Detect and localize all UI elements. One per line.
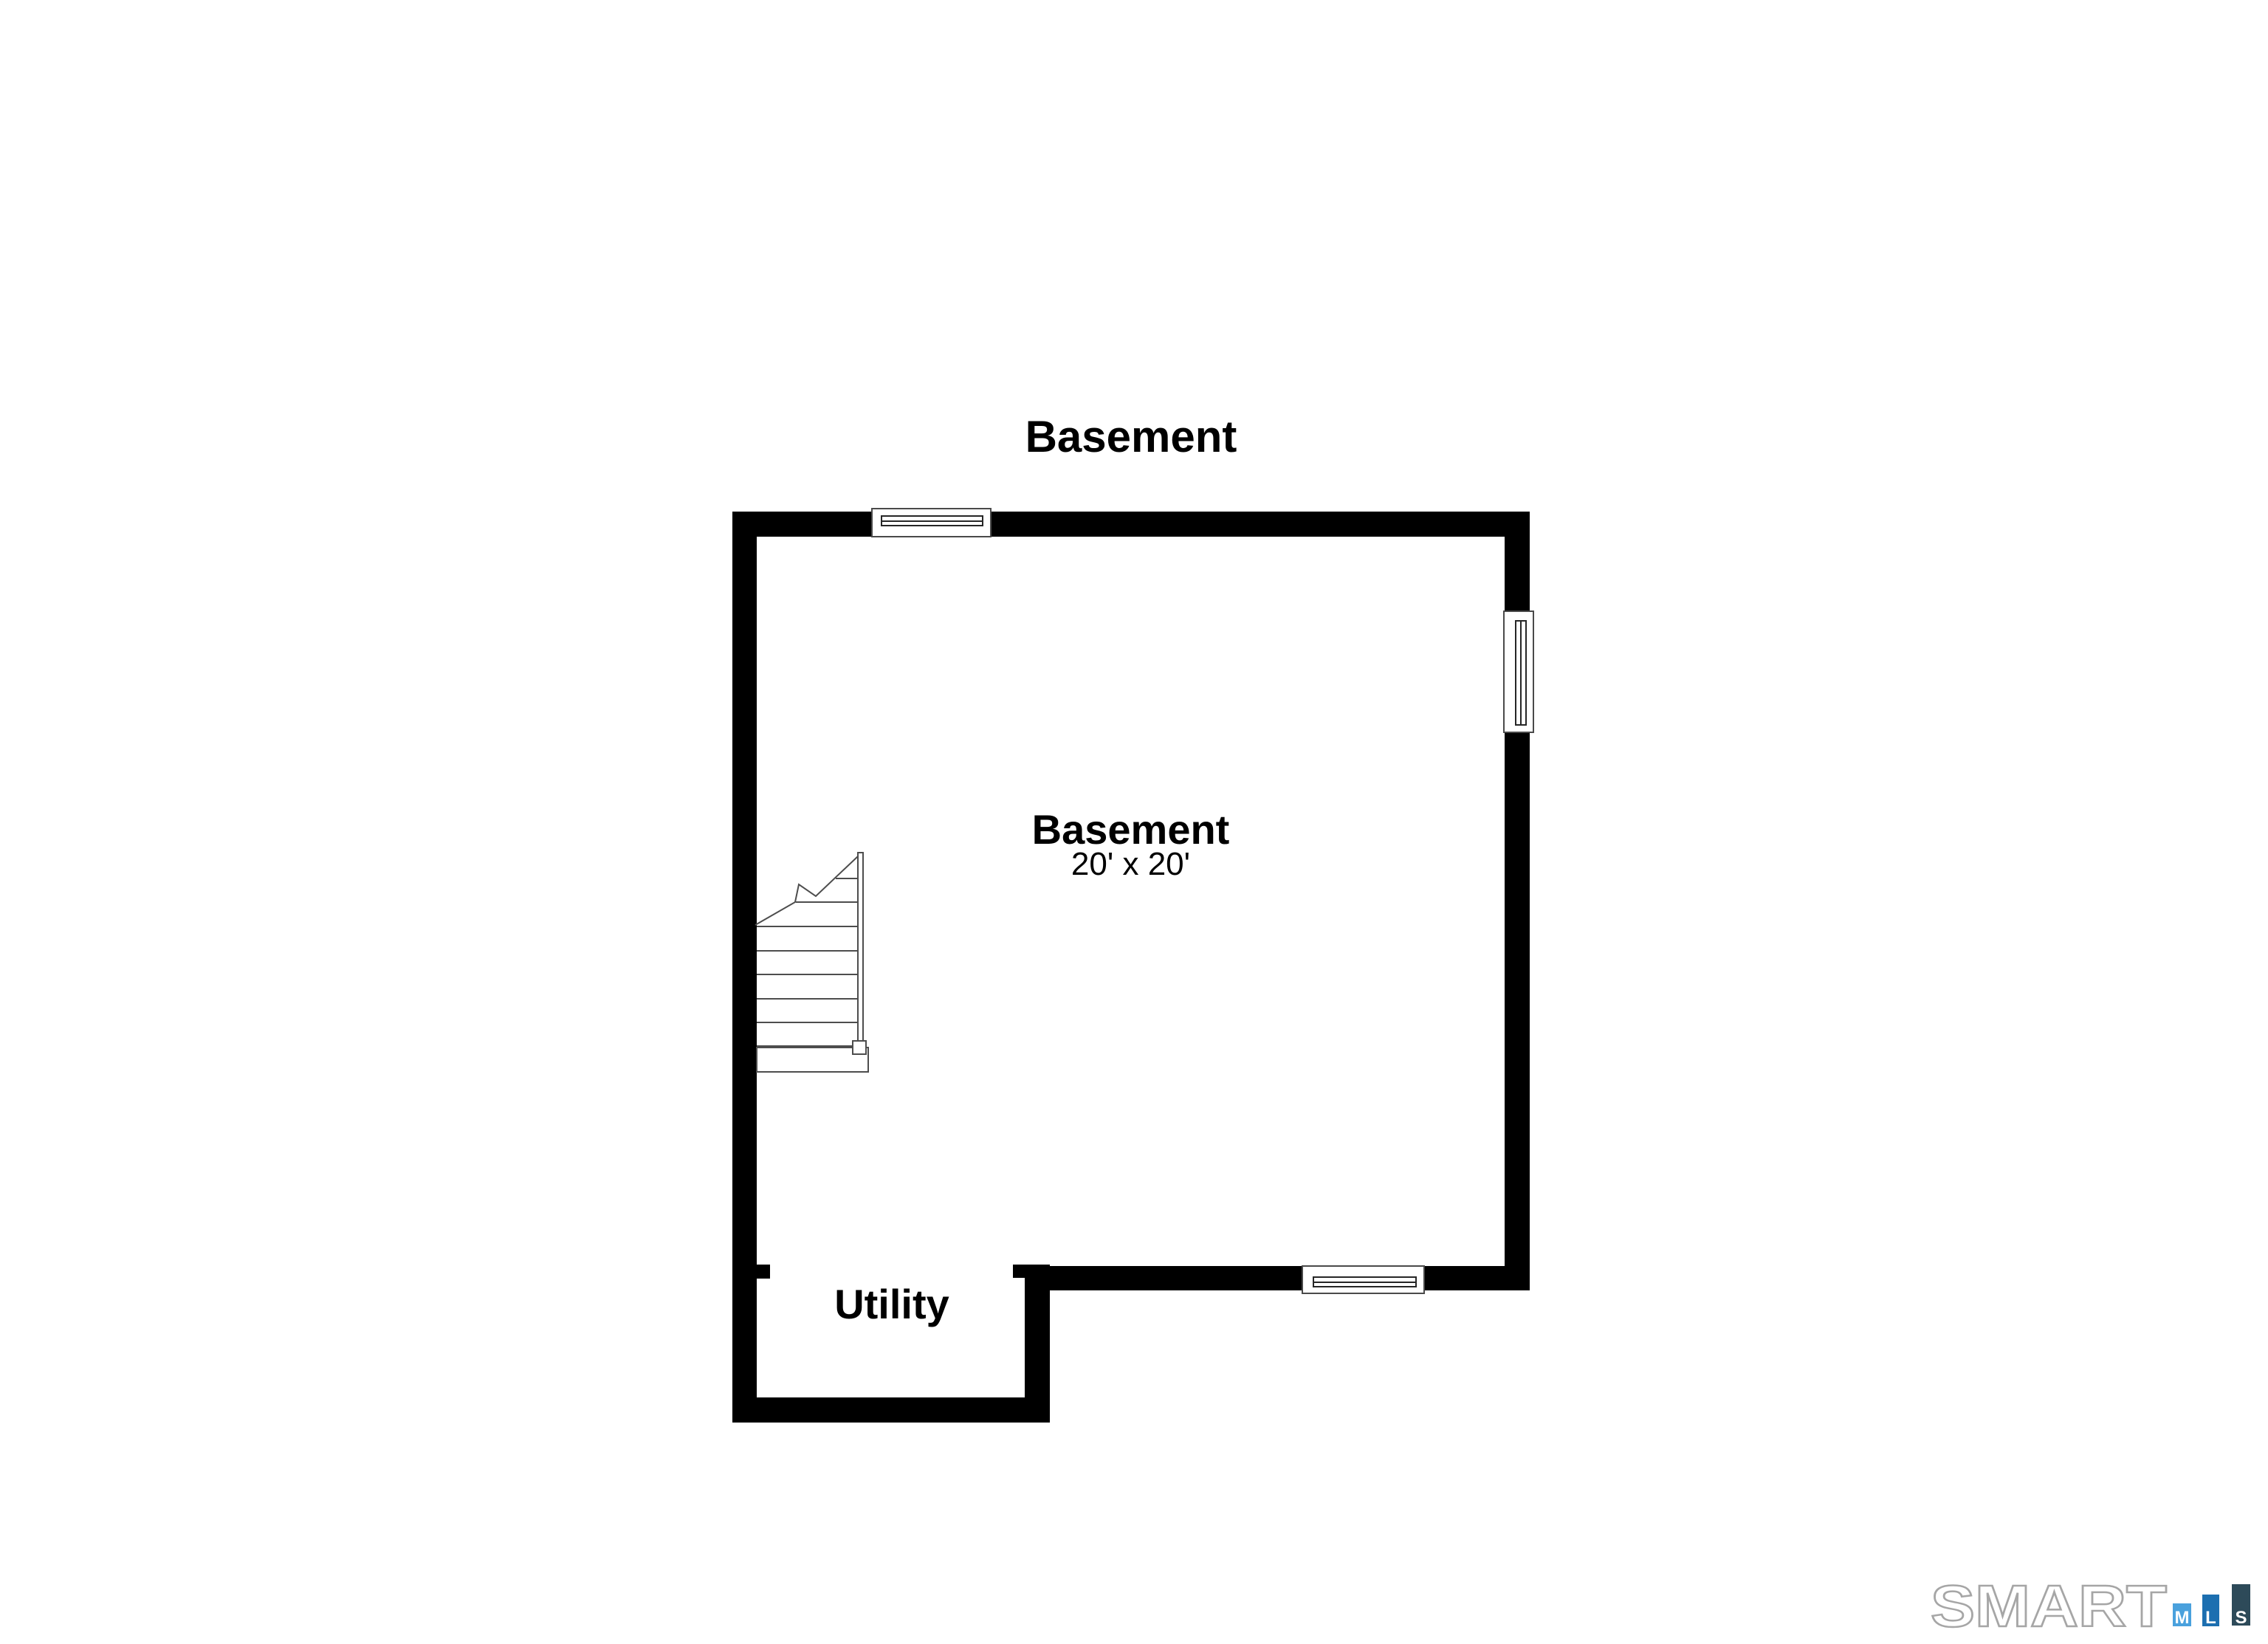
floor-plan-page: Basement Basement 20' x 20' U	[0, 0, 2268, 1644]
smartmls-logo: SMART M L S	[1920, 1565, 2268, 1644]
window-right-icon	[1503, 611, 1534, 733]
room-dimensions-basement: 20' x 20'	[757, 848, 1505, 881]
stair-treads	[757, 878, 858, 1046]
wall-top	[732, 512, 1530, 537]
window-right-glass	[1515, 620, 1527, 726]
window-top-icon	[871, 508, 992, 537]
room-label-basement: Basement	[757, 809, 1505, 850]
plan-title: Basement	[732, 415, 1530, 459]
window-bottom-glass	[1313, 1276, 1417, 1287]
logo-brand-text: SMART	[1931, 1573, 2167, 1639]
logo-bar-s-label: S	[2235, 1608, 2247, 1628]
wall-opening-stub-right	[1013, 1265, 1025, 1278]
wall-utility-bottom	[732, 1397, 1050, 1423]
wall-bottom-main	[1050, 1266, 1530, 1290]
stair-newel-post	[853, 1041, 866, 1054]
logo-bar-l-label: L	[2205, 1608, 2216, 1628]
stair-rail	[858, 853, 863, 1043]
window-bottom-icon	[1302, 1265, 1425, 1294]
room-label-utility: Utility	[770, 1284, 1014, 1325]
logo-bar-m-label: M	[2175, 1608, 2190, 1628]
wall-opening-stub-left	[757, 1265, 770, 1279]
stair-landing	[757, 1048, 868, 1072]
window-top-glass	[881, 515, 983, 526]
